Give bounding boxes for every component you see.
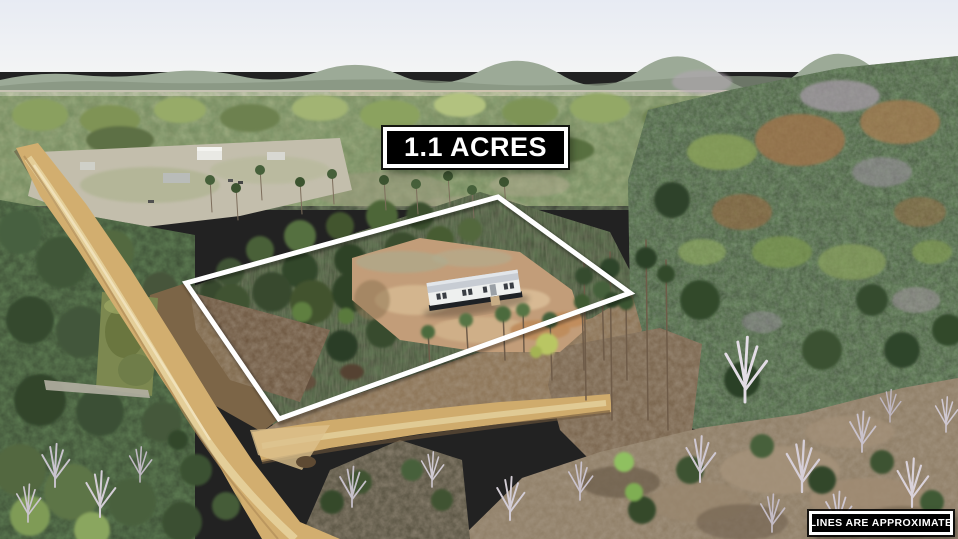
distant-building <box>267 152 285 160</box>
disclaimer-label: LINES ARE APPROXIMATE <box>809 511 953 535</box>
acreage-label: 1.1 ACRES <box>383 127 568 168</box>
mobile-home-steps <box>490 296 500 306</box>
photo-scene <box>0 0 958 539</box>
distant-building <box>163 173 190 183</box>
aerial-property-photo: 1.1 ACRES LINES ARE APPROXIMATE <box>0 0 958 539</box>
